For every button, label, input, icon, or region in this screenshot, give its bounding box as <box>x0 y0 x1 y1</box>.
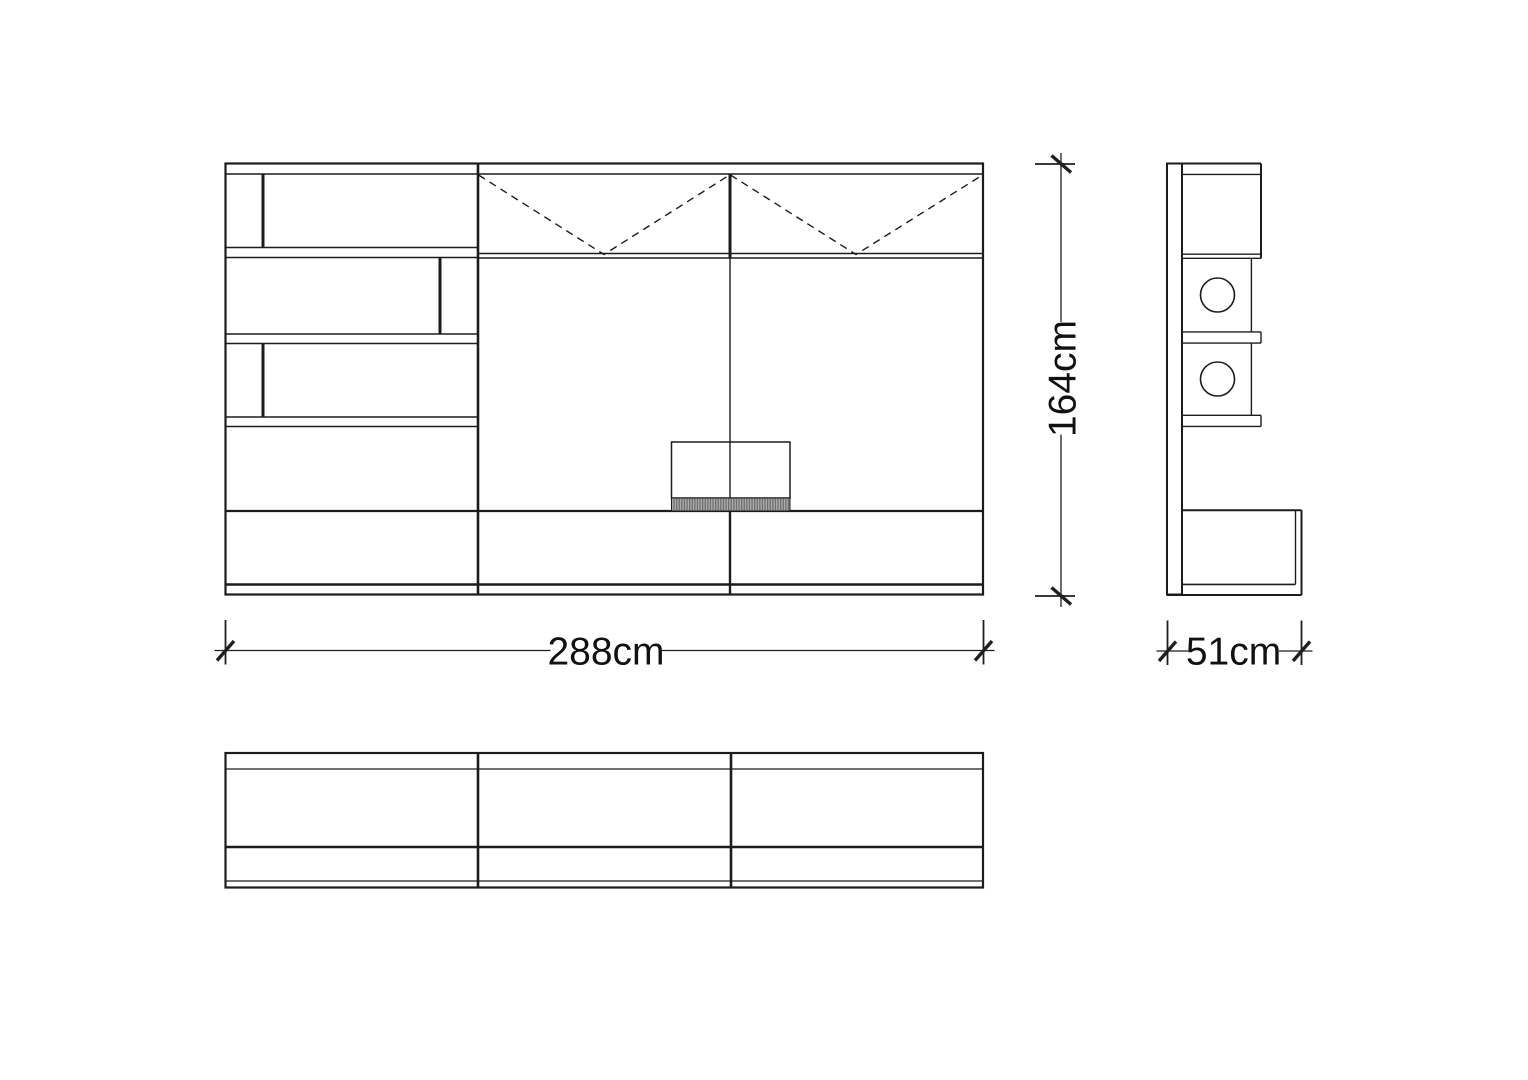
svg-text:164cm: 164cm <box>1042 320 1085 437</box>
svg-text:288cm: 288cm <box>547 631 664 674</box>
svg-text:51cm: 51cm <box>1186 631 1281 674</box>
